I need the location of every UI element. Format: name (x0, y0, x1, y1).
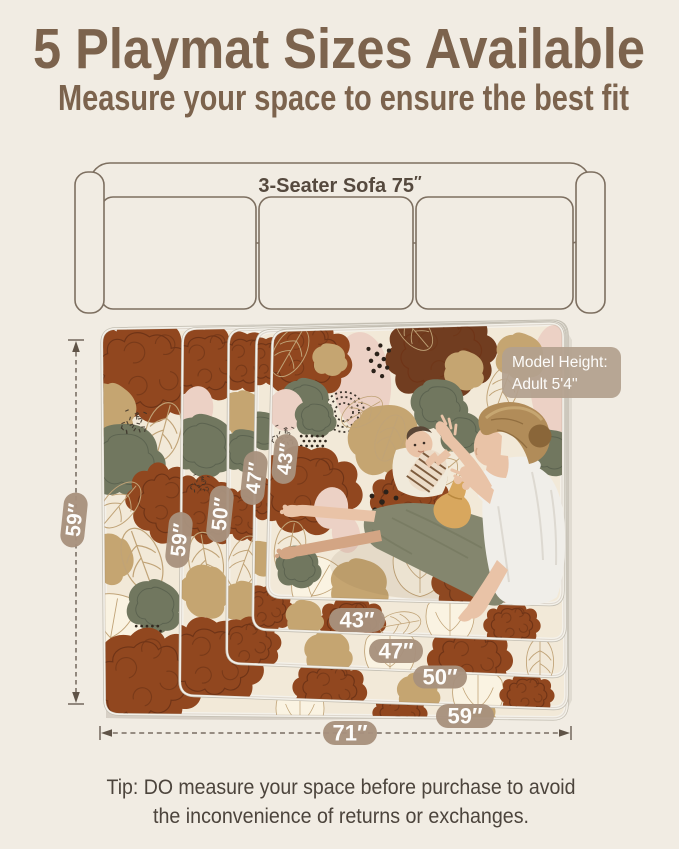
svg-text:59″: 59″ (167, 522, 193, 558)
svg-text:Tip: DO measure your space bef: Tip: DO measure your space before purcha… (107, 775, 576, 799)
svg-text:59″: 59″ (447, 704, 482, 729)
svg-text:43″: 43″ (339, 608, 374, 633)
svg-text:the inconvenience of returns o: the inconvenience of returns or exchange… (153, 804, 529, 828)
svg-text:Adult 5'4'': Adult 5'4'' (512, 376, 578, 393)
svg-text:59″: 59″ (62, 502, 88, 538)
svg-text:Model Height:: Model Height: (512, 354, 608, 371)
svg-text:43″: 43″ (273, 442, 298, 476)
svg-text:47″: 47″ (242, 461, 267, 495)
svg-text:Measure your space to ensure t: Measure your space to ensure the best fi… (58, 77, 629, 118)
svg-text:3-Seater Sofa 75″: 3-Seater Sofa 75″ (258, 174, 422, 197)
svg-text:47″: 47″ (378, 639, 413, 664)
svg-text:50″: 50″ (208, 496, 234, 532)
svg-text:71″: 71″ (332, 721, 367, 746)
svg-text:5 Playmat Sizes Available: 5 Playmat Sizes Available (33, 17, 645, 81)
svg-text:50″: 50″ (422, 665, 457, 690)
